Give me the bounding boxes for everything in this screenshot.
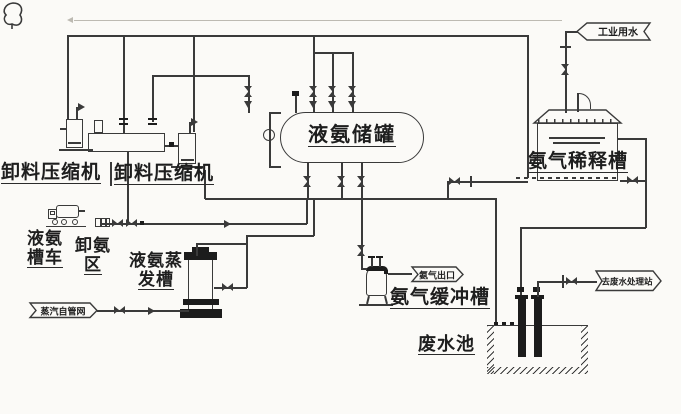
pipe	[67, 35, 528, 37]
pipe	[371, 257, 373, 267]
evaporator-top-band	[184, 252, 217, 260]
tanker-label: 液氨 槽车	[24, 229, 66, 268]
vent-hook-icon	[577, 93, 591, 109]
pipe	[520, 227, 646, 229]
flange-icon	[560, 46, 571, 48]
flange-icon	[148, 118, 157, 120]
valve-icon	[222, 283, 233, 292]
buffer-tank-label: 氨气缓冲槽	[390, 287, 490, 309]
waste-pool-label: 废水池	[418, 334, 475, 355]
ground-line	[46, 226, 86, 227]
tanker-truck-window	[50, 211, 55, 215]
flange-icon	[119, 123, 128, 125]
flow-arrow-icon	[244, 101, 252, 108]
evaporator-label: 液氨蒸 发槽	[125, 251, 187, 290]
compressor-a	[66, 119, 83, 148]
unloading-area-label: 卸氨 区	[72, 236, 114, 275]
flow-arrow-icon	[309, 101, 317, 108]
pipe	[537, 281, 539, 297]
pipe	[74, 20, 562, 21]
evaporator-flange	[183, 299, 219, 305]
flag-ammonia-outlet: 氨气出口	[411, 266, 465, 283]
pipe	[205, 198, 496, 200]
valve-icon	[560, 64, 569, 75]
pipe	[361, 268, 367, 270]
fitting	[140, 221, 144, 225]
fitting	[169, 142, 174, 147]
pipe	[181, 159, 194, 161]
valve-icon	[126, 219, 137, 228]
svg-text:工业用水: 工业用水	[598, 26, 639, 39]
liquid-level-line	[553, 142, 600, 144]
valve-icon	[302, 176, 311, 187]
pipe	[379, 257, 381, 267]
valve-icon	[347, 86, 356, 97]
label-divider	[110, 162, 112, 186]
buffer-leg	[384, 296, 387, 304]
buffer-base	[359, 304, 393, 306]
valve-icon	[627, 176, 638, 185]
flag-pennant-icon	[191, 118, 198, 126]
pipe	[196, 243, 247, 245]
pipe	[152, 75, 250, 77]
pipe	[495, 198, 497, 326]
valve-icon	[566, 277, 577, 286]
wheel-icon	[61, 219, 67, 225]
pipe	[79, 210, 85, 212]
vent-fitting	[292, 91, 299, 96]
wheel-icon	[52, 219, 58, 225]
flow-arrow-icon	[148, 307, 155, 315]
level-gauge	[269, 166, 281, 168]
flow-arrow-icon	[328, 101, 336, 108]
unloading-arm	[0, 0, 26, 32]
pipe	[645, 138, 647, 228]
dilution-tank-label: 氨气稀释槽	[528, 151, 628, 173]
evaporator-cap	[192, 247, 209, 252]
nozzle-cap	[368, 256, 375, 258]
pipe	[60, 128, 66, 130]
pipe	[67, 35, 69, 119]
level-gauge	[269, 112, 281, 114]
flange-icon	[470, 176, 472, 187]
submersible-pump	[534, 299, 542, 357]
flag-steam-network: 蒸汽自管网	[29, 302, 99, 319]
valve-icon	[356, 176, 365, 187]
gauge-dial-icon	[263, 129, 275, 141]
flag-to-wastewater-station: 去废水处理站	[595, 270, 663, 292]
flag-industrial-water: 工业用水	[576, 22, 652, 41]
valve-icon	[114, 306, 125, 315]
sparger-line	[516, 177, 620, 179]
pipe	[520, 227, 522, 295]
pipe	[565, 31, 578, 33]
pipe	[295, 96, 297, 113]
compressor-right-label: 卸料压缩机	[114, 163, 214, 185]
fitting	[517, 287, 524, 292]
flow-arrow-icon	[348, 101, 356, 108]
pipe	[196, 243, 198, 256]
buffer-leg	[366, 296, 369, 304]
pipe	[388, 273, 412, 275]
svg-text:蒸汽自管网: 蒸汽自管网	[40, 306, 85, 317]
pipe	[68, 142, 81, 144]
pipe	[618, 138, 646, 140]
pid-canvas: 卸料压缩机 卸料压缩机 液氨 槽车 卸氨 区 液氨储罐	[0, 0, 681, 414]
pipe	[306, 198, 308, 224]
flag-pennant-icon	[78, 103, 85, 111]
compressor-skid	[88, 133, 165, 152]
valve-icon	[327, 86, 336, 97]
flow-arrow-icon	[224, 220, 231, 228]
valve-icon	[308, 86, 317, 97]
submersible-pump	[518, 299, 526, 357]
vent-hook-icon	[577, 93, 579, 112]
compressor-skid	[94, 120, 103, 133]
pipe	[97, 310, 189, 312]
wheel-icon	[72, 219, 78, 225]
pump-cap	[515, 295, 528, 299]
valve-icon	[112, 219, 123, 228]
storage-tank-label: 液氨储罐	[280, 124, 424, 146]
valve-icon	[336, 176, 345, 187]
tanker-truck-tank	[56, 205, 79, 218]
liquid-level-line	[549, 137, 605, 139]
flange-icon	[148, 123, 157, 125]
flow-arrow-icon	[67, 17, 73, 23]
fitting	[384, 270, 388, 274]
valve-icon	[449, 177, 460, 186]
pipe	[152, 75, 154, 122]
lid-bolts	[538, 119, 618, 124]
svg-text:氨气出口: 氨气出口	[419, 270, 455, 281]
pipe	[246, 235, 314, 237]
pipe	[313, 198, 315, 236]
valve-icon	[243, 86, 252, 97]
valve-icon	[356, 245, 365, 256]
svg-text:去废水处理站: 去废水处理站	[601, 277, 653, 287]
pipe	[246, 235, 248, 288]
nozzle-cap	[376, 256, 383, 258]
waste-pool-wall	[487, 367, 588, 374]
flange-icon	[562, 275, 564, 288]
flange-icon	[119, 118, 128, 120]
compressor-left-label: 卸料压缩机	[1, 162, 101, 184]
